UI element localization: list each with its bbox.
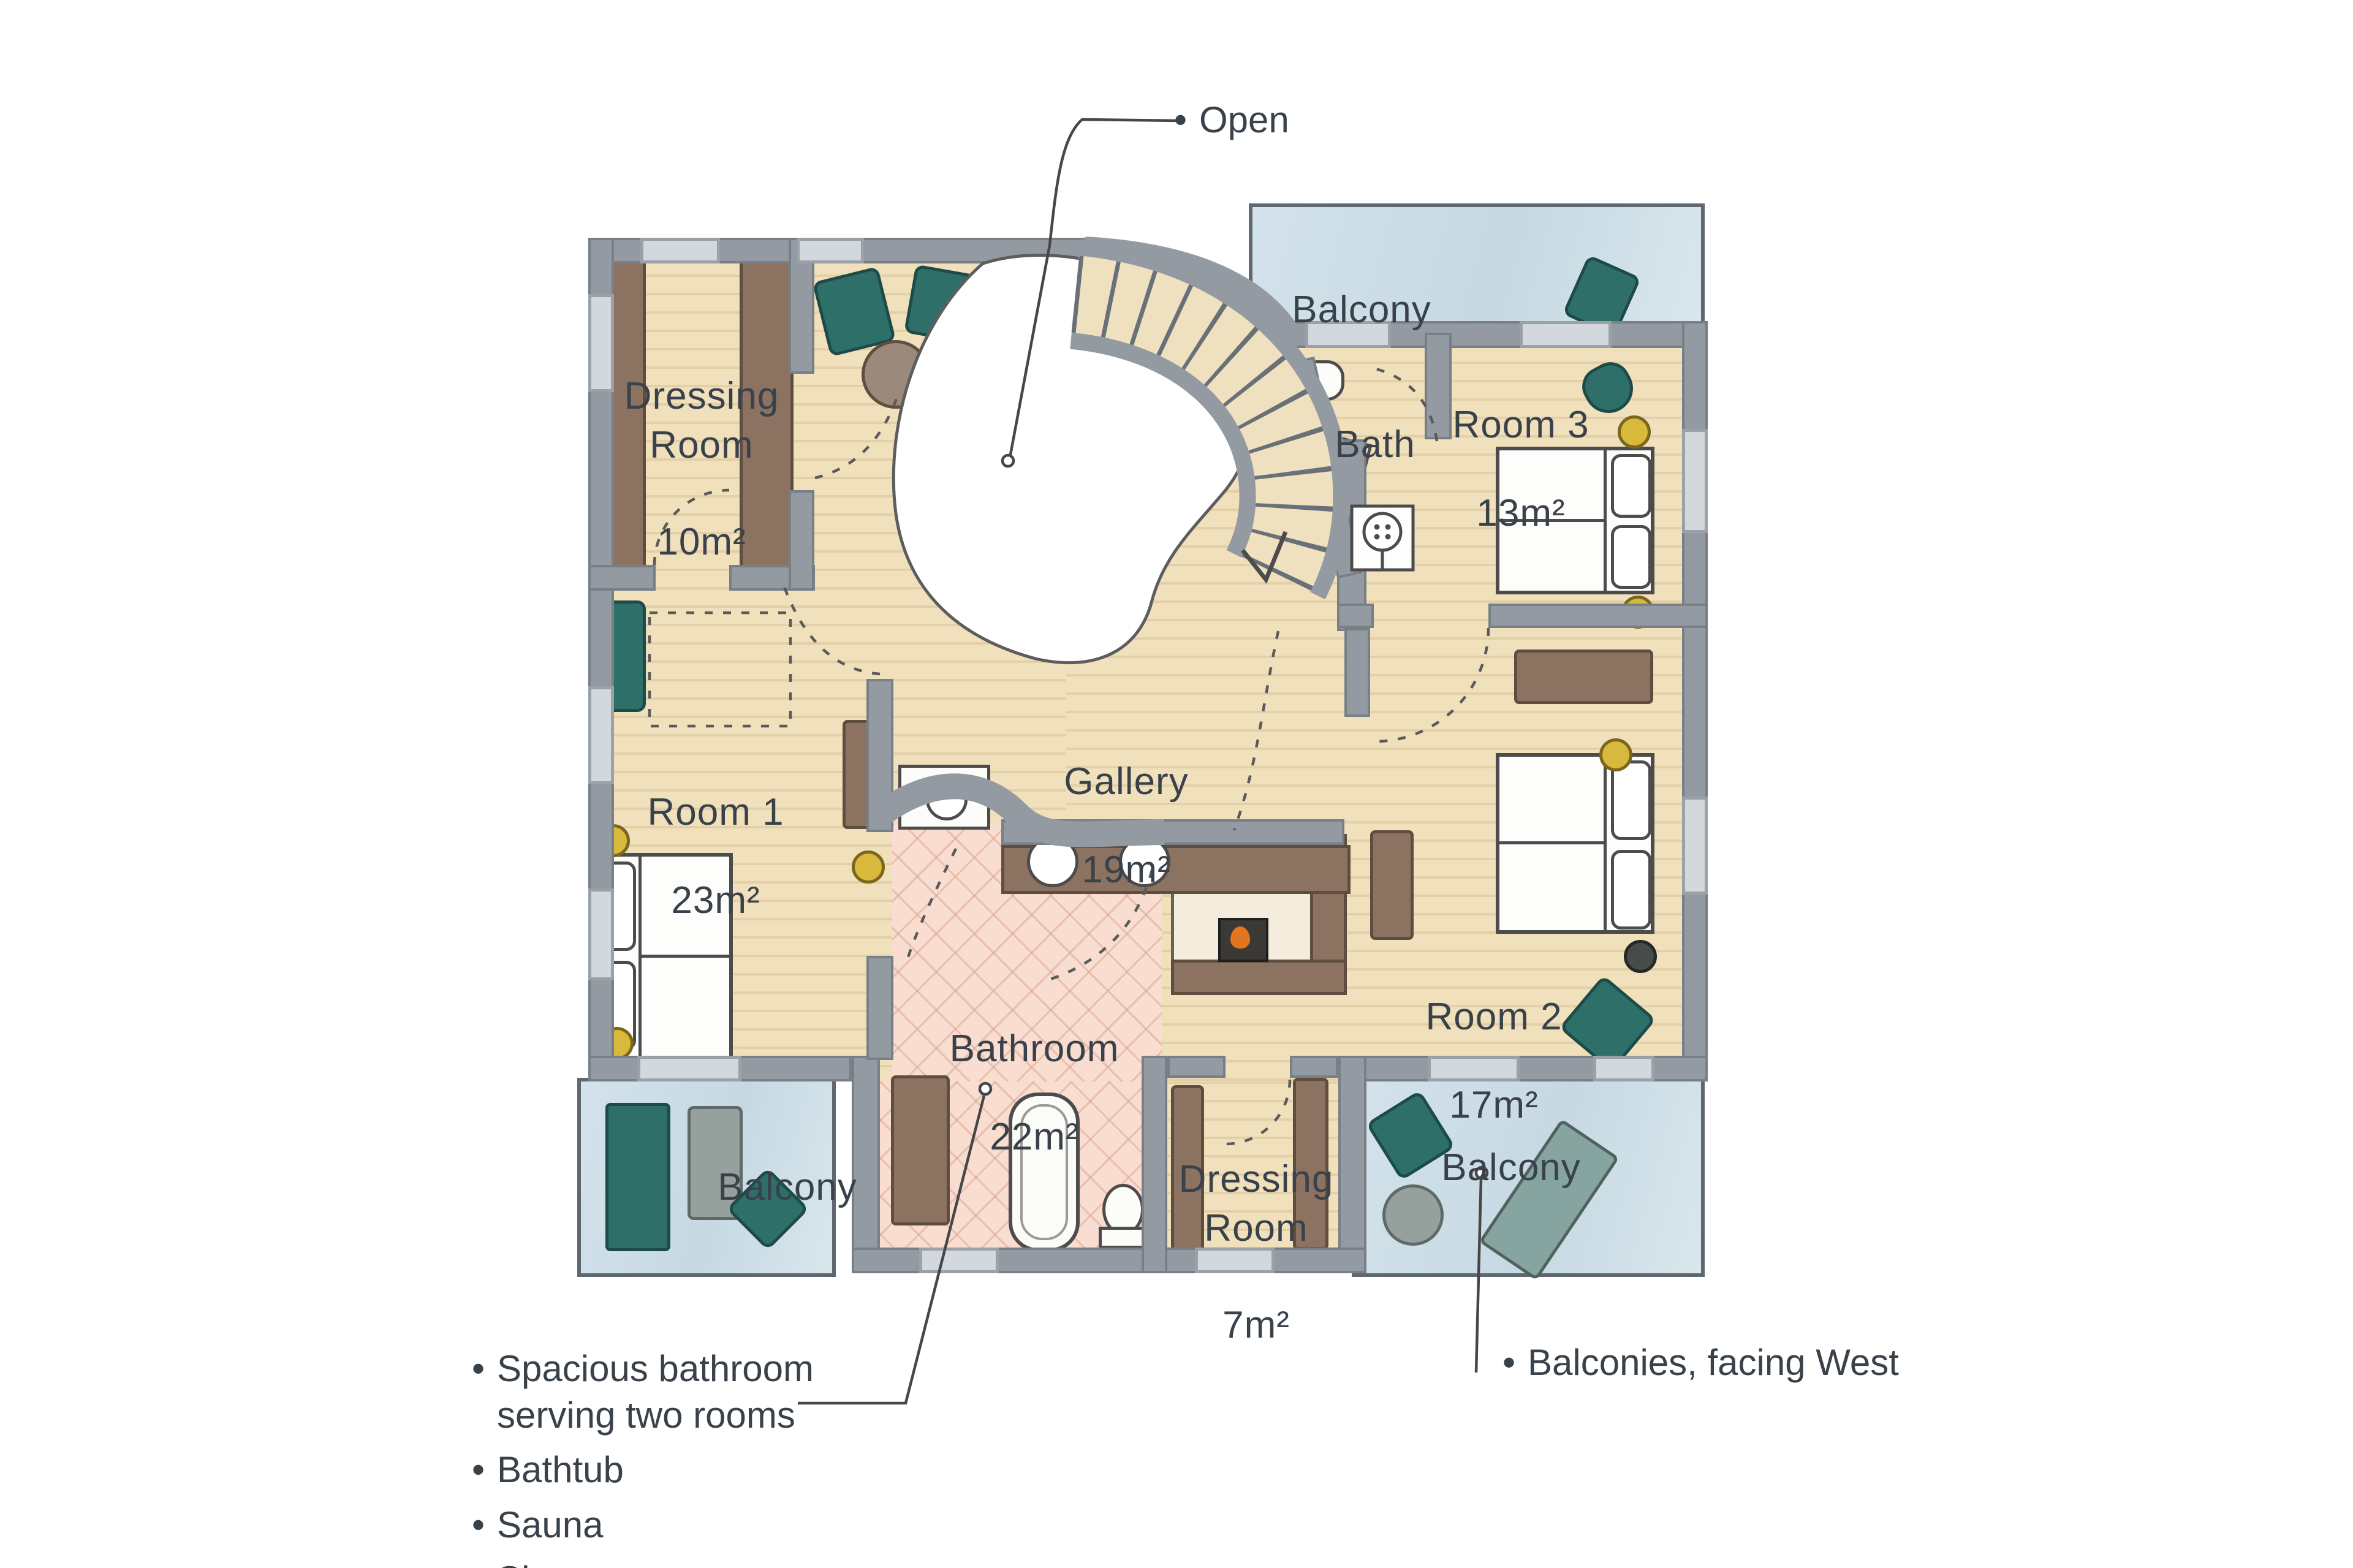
shower-icon xyxy=(1352,506,1413,570)
note-text: Bathtub xyxy=(497,1447,624,1493)
bullet-icon: • xyxy=(472,1502,485,1548)
annotation-balconies-text: Balconies, facing West xyxy=(1528,1339,1899,1386)
label-bathroom: Bathroom 22m² xyxy=(950,983,1120,1203)
bullet-icon: • xyxy=(472,1346,485,1438)
note-text: Shower xyxy=(497,1556,621,1568)
note-text: Spacious bathroom serving two rooms xyxy=(497,1346,814,1438)
note-item: • Shower xyxy=(472,1556,814,1568)
note-item: • Spacious bathroom serving two rooms xyxy=(472,1346,814,1438)
bullet-icon: • xyxy=(1502,1339,1515,1386)
bullet-icon: • xyxy=(472,1556,485,1568)
label-dressing-room-7: Dressing Room 7m² xyxy=(1179,1107,1334,1398)
note-item: • Sauna xyxy=(472,1502,814,1548)
leader-open-end xyxy=(1002,455,1014,466)
label-gallery: Gallery 19m² xyxy=(1064,716,1188,936)
annotation-balconies: • Balconies, facing West xyxy=(1502,1339,1899,1386)
annotation-bathroom-notes: • Spacious bathroom serving two rooms • … xyxy=(472,1346,814,1568)
label-dressing-room-10: Dressing Room 10m² xyxy=(624,324,779,615)
label-balcony-bottom-left: Balcony xyxy=(718,1121,857,1254)
bullet-icon: • xyxy=(1174,97,1187,143)
label-room3: Room 3 13m² xyxy=(1452,359,1589,580)
bullet-icon: • xyxy=(472,1447,485,1493)
note-item: • Bathtub xyxy=(472,1447,814,1493)
floor-plan-canvas: Dressing Room 10m² Balcony Bath Room 3 1… xyxy=(0,0,2353,1568)
annotation-open-text: Open xyxy=(1199,97,1289,143)
note-text: Sauna xyxy=(497,1502,604,1548)
annotation-open: • Open xyxy=(1174,97,1289,143)
label-balcony-bottom-right: Balcony xyxy=(1441,1102,1581,1234)
label-bath: Bath xyxy=(1335,379,1415,511)
label-balcony-top: Balcony xyxy=(1292,244,1431,376)
label-room1: Room 1 23m² xyxy=(647,746,784,967)
